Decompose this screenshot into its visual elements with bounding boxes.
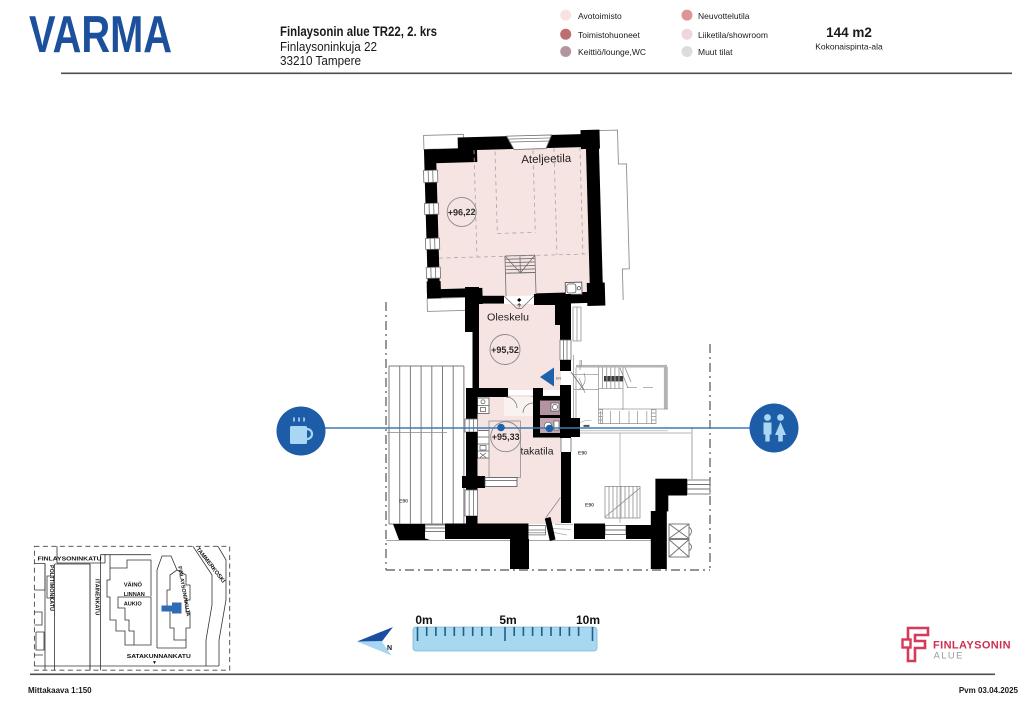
svg-text:ALUE: ALUE [934, 651, 964, 662]
svg-text:E90: E90 [585, 503, 594, 509]
svg-text:Pvm 03.04.2025: Pvm 03.04.2025 [959, 686, 1019, 695]
svg-text:0m: 0m [415, 613, 432, 627]
svg-text:+96,22: +96,22 [448, 207, 476, 218]
svg-text:VARMA: VARMA [29, 6, 172, 64]
svg-text:Keittiö/lounge,WC: Keittiö/lounge,WC [578, 47, 646, 57]
svg-text:ITÄINENKATU: ITÄINENKATU [94, 579, 101, 615]
svg-text:takatila: takatila [521, 446, 554, 458]
svg-text:POLTTIMONKATU: POLTTIMONKATU [48, 565, 54, 611]
svg-text:Liiketila/showroom: Liiketila/showroom [698, 30, 768, 40]
svg-text:Muut tilat: Muut tilat [698, 47, 733, 57]
svg-text:Finlaysoninkuja 22: Finlaysoninkuja 22 [280, 39, 377, 54]
svg-text:Oleskelu: Oleskelu [487, 312, 529, 324]
svg-text:E90: E90 [578, 451, 587, 457]
svg-text:E90: E90 [399, 499, 408, 505]
svg-text:33210 Tampere: 33210 Tampere [280, 53, 361, 68]
svg-text:Finlaysonin alue TR22, 2. krs: Finlaysonin alue TR22, 2. krs [280, 24, 437, 39]
svg-text:Toimistohuoneet: Toimistohuoneet [578, 30, 641, 40]
svg-text:LINNAN: LINNAN [124, 592, 145, 598]
svg-text:5m: 5m [499, 613, 516, 627]
svg-text:Mittakaava 1:150: Mittakaava 1:150 [28, 686, 92, 695]
svg-text:AUKIO: AUKIO [124, 602, 143, 608]
svg-text:SATAKUNNANKATU: SATAKUNNANKATU [127, 654, 191, 660]
svg-text:+95,52: +95,52 [491, 345, 519, 355]
svg-text:Ateljeetila: Ateljeetila [521, 153, 572, 166]
svg-text:EN: EN [556, 377, 561, 381]
svg-text:10m: 10m [576, 613, 600, 627]
svg-text:+95,33: +95,33 [492, 432, 520, 442]
svg-text:144 m2: 144 m2 [826, 25, 872, 40]
svg-text:FINLAYSONINKATU: FINLAYSONINKATU [38, 557, 102, 563]
svg-text:Neuvottelutila: Neuvottelutila [698, 11, 750, 21]
svg-text:N: N [387, 645, 392, 652]
svg-text:VÄINÖ: VÄINÖ [124, 582, 143, 589]
svg-text:Avotoimisto: Avotoimisto [578, 11, 622, 21]
svg-text:Kokonaispinta-ala: Kokonaispinta-ala [815, 42, 883, 52]
svg-text:▼: ▼ [152, 660, 157, 666]
